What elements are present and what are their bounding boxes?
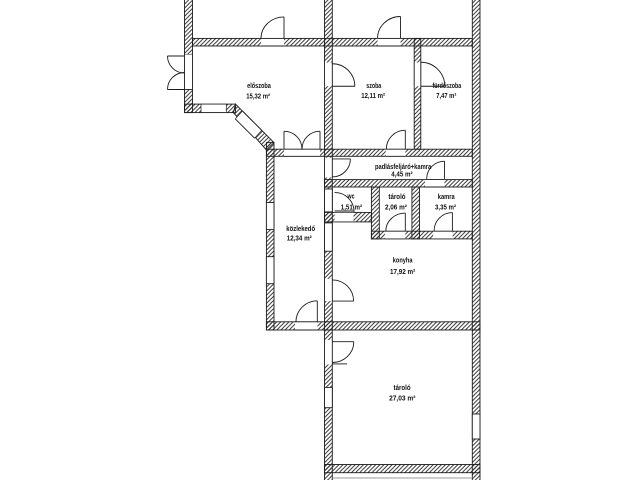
svg-text:1,51 m²: 1,51 m² [341,205,363,212]
svg-text:közlekedő: közlekedő [286,226,315,233]
svg-text:4,45 m²: 4,45 m² [391,172,413,179]
svg-text:kamra: kamra [438,194,455,201]
svg-text:12,11 m²: 12,11 m² [361,93,385,100]
svg-text:12,34 m²: 12,34 m² [287,235,313,242]
svg-text:padlásfeljáró+kamra: padlásfeljáró+kamra [375,164,431,171]
svg-text:17,92 m²: 17,92 m² [390,269,416,276]
svg-text:27,03 m²: 27,03 m² [389,395,416,402]
svg-text:2,06 m²: 2,06 m² [385,205,408,212]
svg-text:3,35 m²: 3,35 m² [435,205,457,212]
svg-text:konyha: konyha [393,258,413,265]
svg-text:tároló: tároló [388,194,405,201]
svg-text:előszoba: előszoba [247,83,271,90]
svg-text:7,47 m²: 7,47 m² [436,93,457,100]
svg-text:15,32 m²: 15,32 m² [246,93,270,100]
svg-text:szoba: szoba [366,83,381,90]
svg-text:wc: wc [347,194,355,201]
svg-text:fürdőszoba: fürdőszoba [433,83,462,90]
svg-text:tároló: tároló [394,385,411,392]
